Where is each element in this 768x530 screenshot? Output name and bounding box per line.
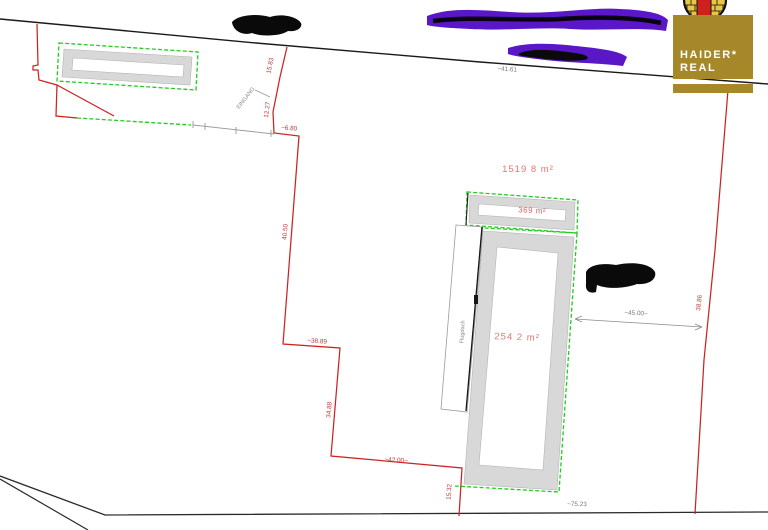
green-boundary-segment (77, 118, 191, 125)
dimension-line-45 (575, 316, 702, 330)
dim-label-40-50: 40.50 (281, 223, 289, 240)
redaction-black-right (586, 263, 655, 292)
logo-underline-bar (673, 84, 753, 93)
logo-wordmark-line2: REAL (680, 62, 716, 74)
boundary-red-west (273, 47, 462, 516)
dim-label-15-83: 15.83 (265, 57, 275, 75)
entrance-leader-line (255, 90, 270, 97)
area-label-hall: 369 m² (518, 205, 546, 215)
street-line-south (0, 476, 768, 515)
fence-line (193, 121, 274, 137)
dim-label-12-27: 12.27 (263, 101, 272, 118)
site-plan-canvas: 15.83 12.27 ~6.80 40.50 ~38.89 34.88 ~42… (0, 0, 768, 530)
door-marker (474, 295, 478, 304)
boundary-red-diagonal (57, 85, 114, 116)
redaction-purple-group (427, 9, 668, 66)
dim-label-75-23: ~75.23 (567, 501, 587, 508)
emblem-center-shield (697, 0, 711, 17)
parcel-green-outlines (57, 43, 578, 492)
dim-label-42-00: ~42.00~ (384, 456, 408, 465)
area-label-parcel: 1519 8 m² (502, 164, 554, 175)
dim-label-41-61: ~41.61 (497, 65, 518, 73)
canopy-annotation: Flugdach (459, 320, 466, 343)
dim-label-38-86: 38.86 (695, 294, 704, 311)
area-label-main-building: 254 2 m² (494, 331, 540, 344)
dim-label-34-88: 34.88 (325, 401, 333, 418)
logo-wordmark-line1: HAIDER* (680, 49, 738, 61)
dim-label-45-00: ~45.00~ (624, 309, 648, 317)
dim-label-6-80: ~6.80 (281, 124, 298, 132)
street-fork-line (0, 479, 88, 530)
dim-label-38-89: ~38.89 (307, 337, 328, 345)
dim-label-15-32: 15.32 (445, 483, 453, 500)
haider-real-logo: HAIDER* REAL (673, 0, 753, 93)
main-building-footprint (464, 231, 574, 490)
entrance-annotation: EINGANG (236, 86, 257, 110)
left-building-footprint (62, 49, 192, 85)
redaction-black-top (232, 15, 301, 36)
site-plan-drawing: 15.83 12.27 ~6.80 40.50 ~38.89 34.88 ~42… (0, 0, 768, 530)
